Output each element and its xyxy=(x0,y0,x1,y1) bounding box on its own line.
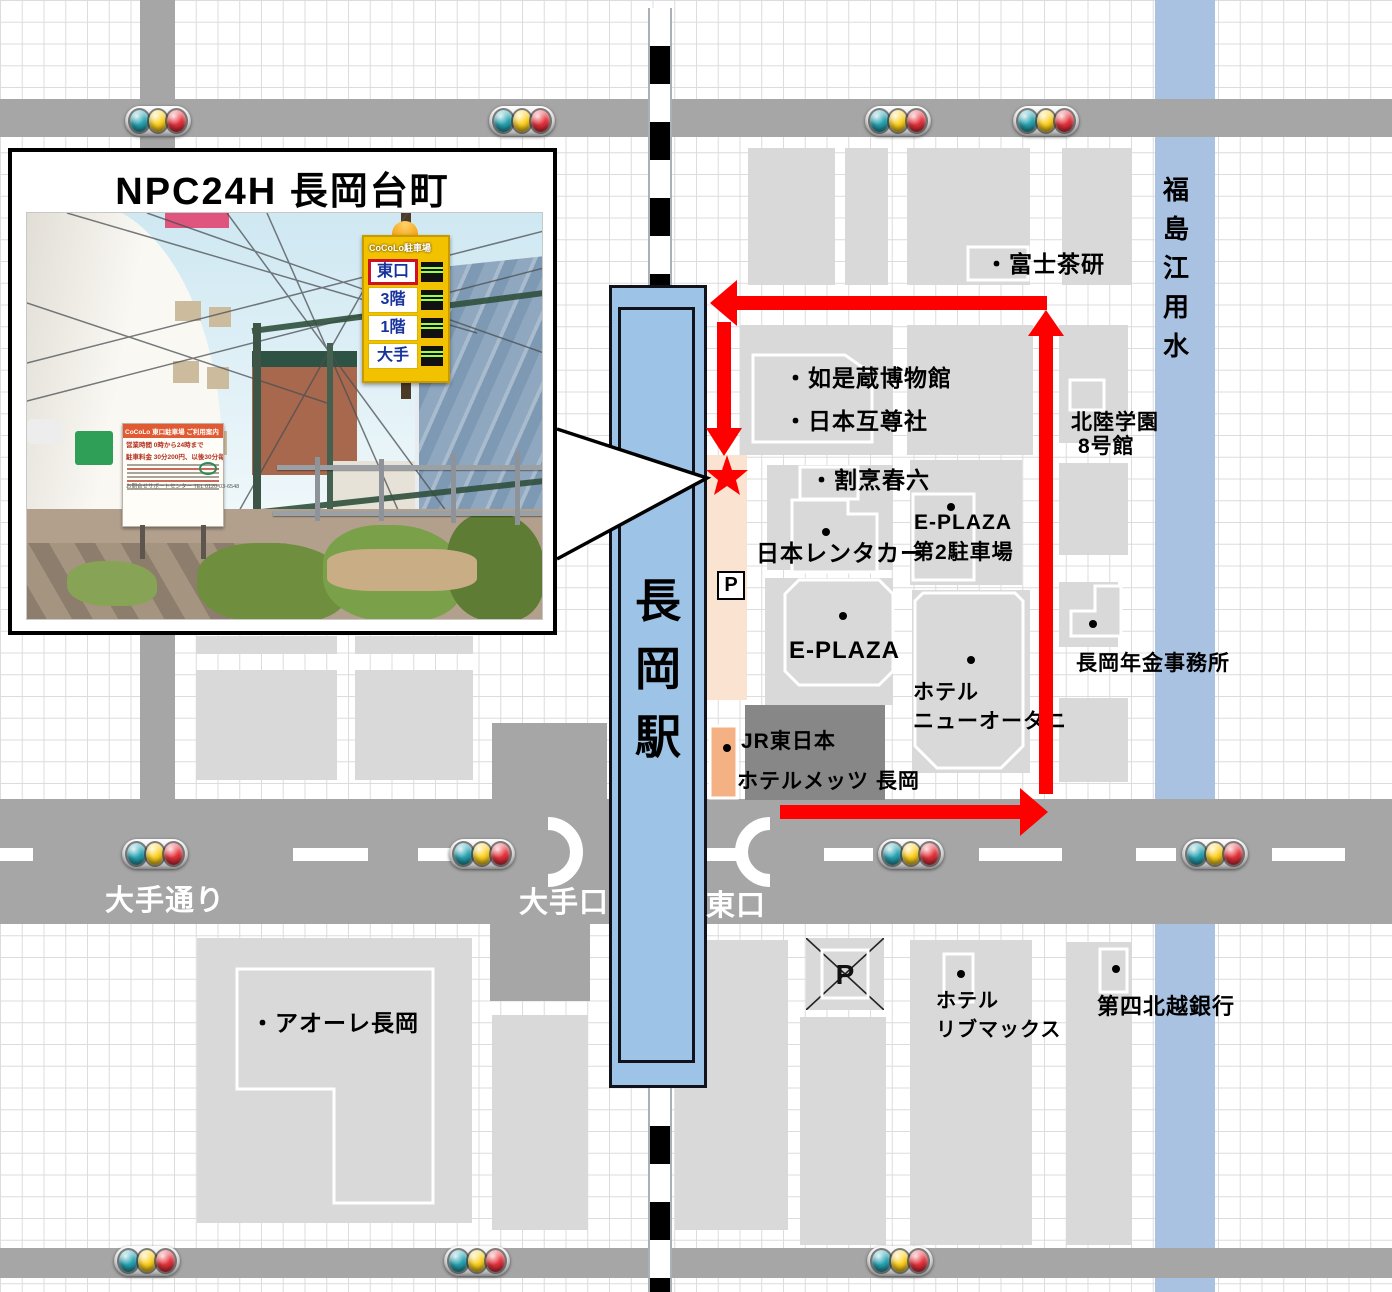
route-arrow-shaft xyxy=(717,322,731,430)
route-arrow-head xyxy=(1028,310,1064,336)
route-overlay xyxy=(0,0,1392,1292)
route-arrow-head xyxy=(1020,788,1048,836)
route-arrow-shaft xyxy=(737,296,1047,310)
access-map: 長岡駅 福島江用水 ・富士茶研・如是蔵博物館・日本互尊社北陸学園8号館・割烹春六… xyxy=(0,0,1392,1292)
destination-star xyxy=(706,455,748,495)
route-arrow-shaft xyxy=(1039,332,1053,794)
route-arrow-head xyxy=(706,428,742,456)
callout-pointer xyxy=(557,429,707,559)
route-arrow-head xyxy=(710,280,737,326)
route-arrow-shaft xyxy=(780,805,1020,819)
